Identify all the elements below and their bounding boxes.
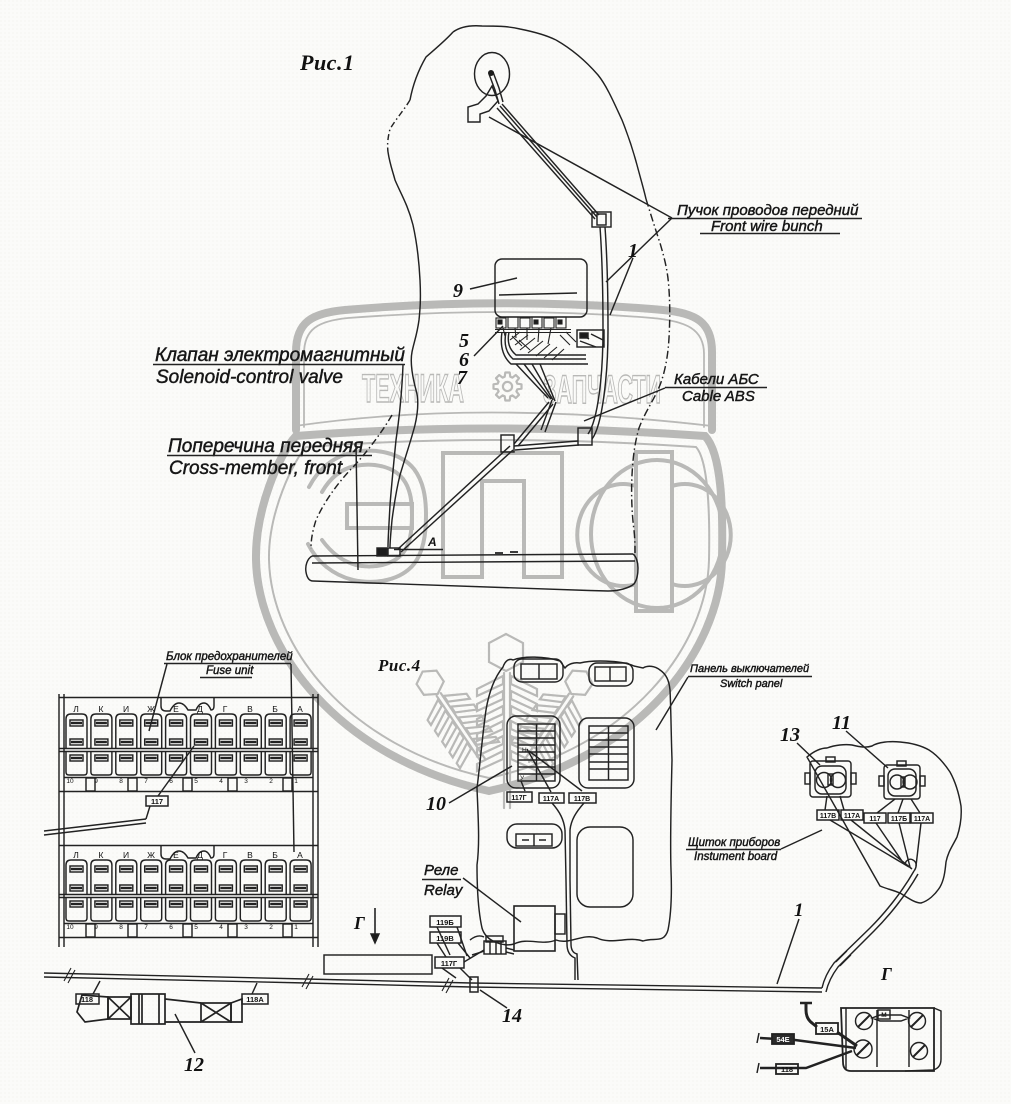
- svg-text:1: 1: [294, 924, 298, 931]
- svg-text:4: 4: [219, 924, 223, 931]
- svg-text:Кабели АБС: Кабели АБС: [674, 371, 759, 388]
- svg-text:11: 11: [832, 712, 851, 734]
- svg-text:Рис.4: Рис.4: [377, 656, 421, 675]
- svg-text:А: А: [297, 704, 303, 714]
- svg-text:5: 5: [194, 778, 198, 785]
- svg-text:К: К: [99, 850, 104, 860]
- svg-text:Клапан электромагнитный: Клапан электромагнитный: [155, 345, 405, 366]
- svg-text:Е: Е: [173, 704, 179, 714]
- svg-text:117В: 117В: [820, 813, 836, 820]
- svg-text:Реле: Реле: [424, 862, 458, 879]
- svg-text:Г: Г: [880, 964, 892, 984]
- svg-text:Л: Л: [73, 704, 79, 714]
- svg-text:117: 117: [869, 816, 880, 823]
- svg-text:117Г: 117Г: [441, 959, 458, 968]
- svg-text:119Б: 119Б: [436, 918, 454, 927]
- svg-text:117Г: 117Г: [511, 795, 526, 802]
- svg-text:1: 1: [294, 778, 298, 785]
- svg-text:Пучок проводов передний: Пучок проводов передний: [677, 202, 859, 219]
- svg-text:117А: 117А: [844, 813, 860, 820]
- svg-text:М: М: [881, 1012, 886, 1019]
- svg-text:7: 7: [457, 367, 468, 389]
- svg-text:117: 117: [151, 797, 163, 806]
- svg-text:118А: 118А: [246, 995, 264, 1004]
- svg-text:Поперечина передняя: Поперечина передняя: [168, 436, 363, 457]
- svg-text:4: 4: [219, 778, 223, 785]
- svg-text:117В: 117В: [574, 796, 590, 803]
- svg-text:8: 8: [119, 778, 123, 785]
- svg-text:117Б: 117Б: [891, 816, 907, 823]
- svg-text:9: 9: [453, 280, 463, 302]
- svg-text:Cable ABS: Cable ABS: [682, 388, 755, 405]
- svg-text:15А: 15А: [820, 1025, 834, 1034]
- svg-text:Щиток приборов: Щиток приборов: [688, 837, 780, 849]
- svg-text:А: А: [297, 850, 303, 860]
- svg-text:Н: Н: [522, 747, 527, 754]
- svg-text:Front wire bunch: Front wire bunch: [711, 218, 823, 235]
- svg-text:Г: Г: [223, 704, 228, 714]
- svg-text:Д: Д: [197, 850, 203, 860]
- svg-text:Relay: Relay: [424, 882, 464, 899]
- svg-text:12: 12: [184, 1054, 204, 1076]
- svg-text:А: А: [427, 535, 437, 549]
- svg-text:И: И: [123, 704, 129, 714]
- svg-text:Г: Г: [353, 913, 365, 933]
- svg-text:В: В: [247, 704, 253, 714]
- svg-text:Д: Д: [197, 704, 203, 714]
- svg-text:3: 3: [244, 924, 248, 931]
- svg-text:Панель выключателей: Панель выключателей: [690, 663, 809, 675]
- svg-text:Solenoid-control valve: Solenoid-control valve: [156, 367, 343, 388]
- svg-text:7: 7: [144, 924, 148, 931]
- svg-text:3: 3: [244, 778, 248, 785]
- svg-text:119В: 119В: [436, 934, 454, 943]
- svg-text:Instument board: Instument board: [694, 851, 778, 863]
- svg-text:Б: Б: [272, 850, 278, 860]
- svg-text:10: 10: [66, 924, 74, 931]
- svg-text:6: 6: [169, 924, 173, 931]
- svg-text:5: 5: [194, 924, 198, 931]
- svg-text:10: 10: [66, 778, 74, 785]
- svg-text:2: 2: [269, 924, 273, 931]
- svg-text:Ж: Ж: [147, 704, 155, 714]
- svg-text:13: 13: [780, 724, 800, 746]
- svg-text:И: И: [123, 850, 129, 860]
- svg-text:1: 1: [794, 900, 804, 921]
- svg-text:Блок предохранителей: Блок предохранителей: [166, 651, 293, 663]
- svg-text:Л: Л: [73, 850, 79, 860]
- svg-text:2: 2: [269, 778, 273, 785]
- svg-text:117А: 117А: [914, 816, 930, 823]
- svg-text:7: 7: [144, 778, 148, 785]
- svg-text:10: 10: [426, 793, 446, 815]
- svg-text:К: К: [99, 704, 104, 714]
- svg-text:Fuse unit: Fuse unit: [206, 665, 254, 677]
- svg-text:Ж: Ж: [147, 850, 155, 860]
- svg-text:54Е: 54Е: [776, 1035, 789, 1044]
- svg-text:В: В: [247, 850, 253, 860]
- svg-text:118: 118: [781, 1065, 793, 1074]
- svg-text:Е: Е: [173, 850, 179, 860]
- svg-text:Б: Б: [272, 704, 278, 714]
- svg-text:Switch panel: Switch panel: [720, 678, 783, 690]
- svg-text:117А: 117А: [543, 796, 559, 803]
- svg-text:Рис.1: Рис.1: [299, 50, 354, 75]
- svg-text:14: 14: [502, 1005, 522, 1027]
- svg-text:Г: Г: [223, 850, 228, 860]
- svg-text:8: 8: [119, 924, 123, 931]
- svg-text:Cross-member, front: Cross-member, front: [169, 458, 343, 479]
